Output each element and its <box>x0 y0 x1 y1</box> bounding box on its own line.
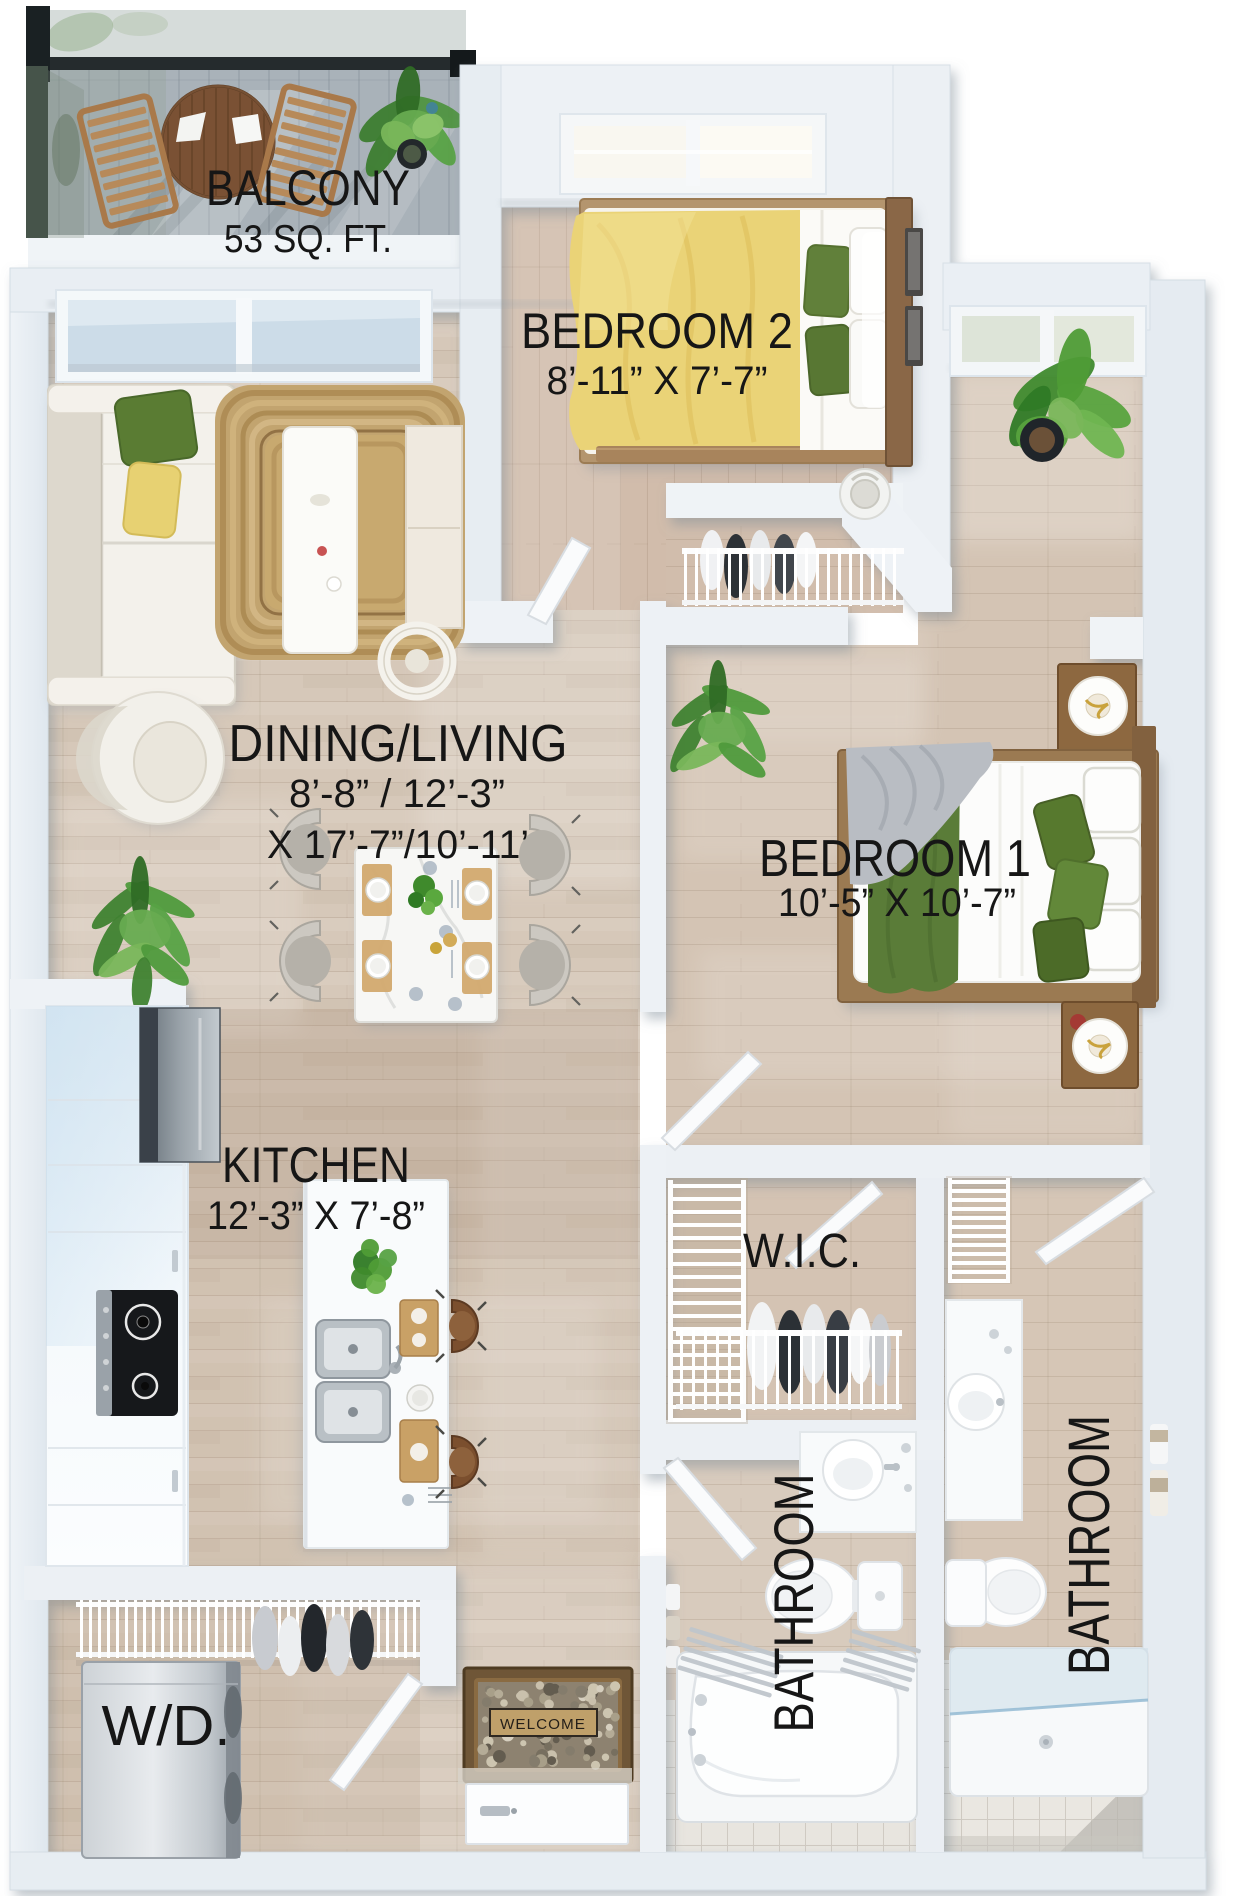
svg-text:W/D.: W/D. <box>102 1694 231 1758</box>
svg-text:8’-11” X 7’-7”: 8’-11” X 7’-7” <box>547 359 768 403</box>
svg-text:X 17’-7”/10’-11’: X 17’-7”/10’-11’ <box>267 823 529 867</box>
svg-text:BATHROOM: BATHROOM <box>762 1474 825 1733</box>
svg-text:53 SQ. FT.: 53 SQ. FT. <box>224 218 392 261</box>
svg-text:DINING/LIVING: DINING/LIVING <box>229 715 568 773</box>
svg-text:BEDROOM 2: BEDROOM 2 <box>521 303 793 359</box>
svg-text:10’-5” X 10’-7”: 10’-5” X 10’-7” <box>778 881 1016 925</box>
svg-text:WELCOME: WELCOME <box>500 1716 586 1733</box>
svg-text:BATHROOM: BATHROOM <box>1057 1415 1122 1675</box>
svg-text:KITCHEN: KITCHEN <box>222 1137 410 1193</box>
svg-text:W.I.C.: W.I.C. <box>743 1225 861 1278</box>
svg-text:8’-8” / 12’-3”: 8’-8” / 12’-3” <box>289 772 505 816</box>
svg-text:BEDROOM 1: BEDROOM 1 <box>759 830 1031 888</box>
svg-text:12’-3” X 7’-8”: 12’-3” X 7’-8” <box>207 1194 425 1238</box>
svg-text:BALCONY: BALCONY <box>206 160 410 216</box>
